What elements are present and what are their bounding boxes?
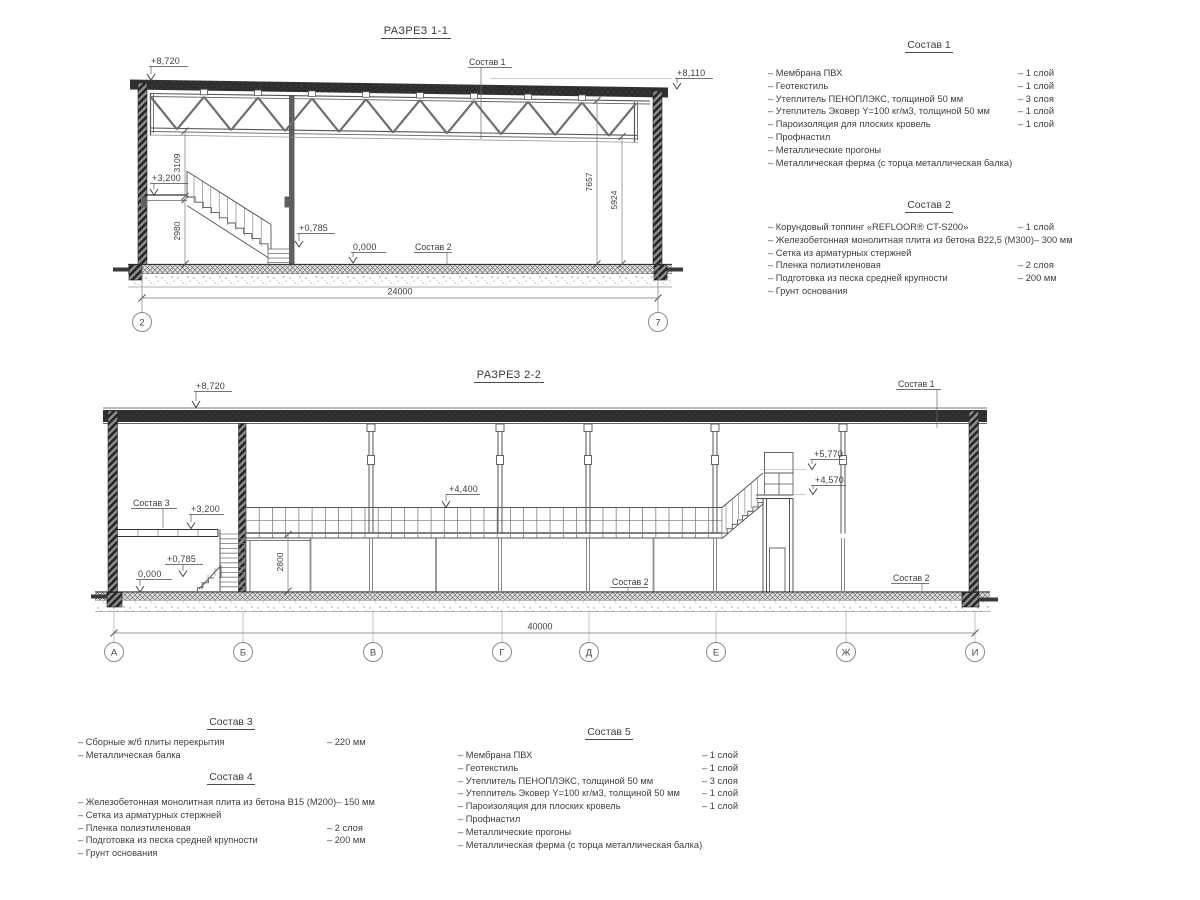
legend-item: – Пароизоляция для плоских кровель– 1 сл… bbox=[458, 800, 760, 813]
legend-item-qty: – 1 слой bbox=[702, 800, 760, 813]
floor-bedding bbox=[95, 601, 990, 612]
level-label: 0,000 bbox=[138, 569, 162, 579]
truss-diagonal bbox=[474, 101, 501, 134]
legend-item-name: – Сборные ж/б плиты перекрытия bbox=[78, 736, 327, 749]
legend-item-qty bbox=[1018, 144, 1090, 157]
legend-item-qty: – 1 слой bbox=[1018, 80, 1090, 93]
legend-item-qty bbox=[702, 826, 760, 839]
legend-item: – Металлические прогоны bbox=[768, 144, 1090, 157]
column-splice bbox=[497, 456, 504, 465]
legend-item-qty bbox=[327, 749, 384, 762]
grid-label: Д bbox=[586, 648, 593, 659]
section-1-1 bbox=[113, 80, 683, 287]
truss-diagonal bbox=[501, 102, 528, 135]
legend-title: Состав 4 bbox=[78, 771, 384, 783]
legend-item: – Пленка полиэтиленовая– 2 слоя bbox=[768, 259, 1090, 272]
legend-items: – Корундовый топпинг «REFLOOR® CT-S200»–… bbox=[768, 221, 1090, 298]
roof-slab bbox=[103, 410, 987, 422]
legend-item-name: – Утеплитель ПЕНОПЛЭКС, толщиной 50 мм bbox=[458, 775, 702, 788]
legend-item-qty bbox=[1018, 285, 1090, 298]
legend-item-name: – Пленка полиэтиленовая bbox=[78, 822, 327, 835]
legend-item: – Мембрана ПВХ– 1 слой bbox=[458, 749, 760, 762]
truss-diagonal bbox=[312, 98, 339, 131]
callout-label: Состав 2 bbox=[415, 242, 452, 252]
column-cap bbox=[839, 424, 847, 432]
legend-item-qty: – 220 мм bbox=[327, 736, 384, 749]
drawing-sheet: РАЗРЕЗ 1-1 РАЗРЕЗ 2-2 bbox=[0, 0, 1200, 900]
legend-item-qty: – 1 слой bbox=[1018, 221, 1090, 234]
legend-item-name: – Профнастил bbox=[458, 813, 702, 826]
legend-item: – Мембрана ПВХ– 1 слой bbox=[768, 67, 1090, 80]
legend-item: – Геотекстиль– 1 слой bbox=[768, 80, 1090, 93]
truss-gusset bbox=[201, 89, 208, 95]
legend-item: – Металлическая ферма (с торца металличе… bbox=[768, 157, 1090, 170]
stair-lower-flight bbox=[268, 249, 292, 266]
level-label: 0,000 bbox=[353, 242, 377, 252]
legend-item: – Профнастил bbox=[458, 813, 760, 826]
legend-item-name: – Геотекстиль bbox=[458, 762, 702, 775]
legend-item: – Утеплитель Эковер Y=100 кг/м3, толщино… bbox=[768, 105, 1090, 118]
wall-right bbox=[653, 91, 662, 265]
stair-tower-top bbox=[765, 453, 794, 474]
truss-diagonal bbox=[393, 100, 420, 133]
truss-diagonal bbox=[609, 103, 636, 136]
callout-label: Состав 2 bbox=[893, 573, 930, 583]
truss-diagonal bbox=[231, 98, 258, 131]
legend-item-qty bbox=[327, 809, 384, 822]
stair-steps bbox=[722, 498, 763, 533]
section-2-2 bbox=[91, 408, 998, 612]
dimension-label: 7657 bbox=[584, 172, 594, 191]
column-splice bbox=[368, 456, 375, 465]
legend-item: – Грунт основания bbox=[78, 847, 384, 860]
truss-diagonal bbox=[528, 102, 555, 135]
legend-item-name: – Металлические прогоны bbox=[768, 144, 1018, 157]
legend-title: Состав 5 bbox=[458, 726, 760, 738]
legend-item-name: – Металлическая ферма (с торца металличе… bbox=[768, 157, 1018, 170]
legend-item-qty bbox=[327, 847, 384, 860]
legend-item-name: – Утеплитель ПЕНОПЛЭКС, толщиной 50 мм bbox=[768, 93, 1018, 106]
mezzanine-slab bbox=[117, 530, 218, 537]
legend-item-qty: – 150 мм bbox=[336, 796, 393, 809]
grid-label: Г bbox=[499, 648, 504, 659]
floor-slab bbox=[95, 593, 990, 601]
legend-item-name: – Сетка из арматурных стержней bbox=[768, 247, 1018, 260]
legend-item-name: – Утеплитель Эковер Y=100 кг/м3, толщино… bbox=[458, 787, 702, 800]
legend-item-qty: – 200 мм bbox=[327, 834, 384, 847]
legend-item-name: – Грунт основания bbox=[78, 847, 327, 860]
truss-diagonal bbox=[150, 96, 177, 129]
truss-diagonal bbox=[582, 102, 609, 135]
wall-right bbox=[969, 411, 979, 593]
level-label: +8,720 bbox=[151, 56, 180, 66]
column-splice bbox=[585, 456, 592, 465]
legend-item: – Сетка из арматурных стержней bbox=[78, 809, 384, 822]
legend-items: – Сборные ж/б плиты перекрытия– 220 мм– … bbox=[78, 736, 384, 762]
floor-bedding bbox=[128, 274, 672, 287]
stair-railing bbox=[722, 473, 763, 508]
grid-label: Б bbox=[240, 648, 246, 659]
grid-label: В bbox=[370, 648, 376, 659]
truss-diagonal bbox=[447, 101, 474, 134]
legend-item-name: – Железобетонная монолитная плита из бет… bbox=[78, 796, 336, 809]
legend-sostav-2: Состав 2 – Корундовый топпинг «REFLOOR® … bbox=[768, 199, 1090, 298]
grid-label: 2 bbox=[139, 318, 144, 329]
legend-item-name: – Геотекстиль bbox=[768, 80, 1018, 93]
legend-item: – Пароизоляция для плоских кровель– 1 сл… bbox=[768, 118, 1090, 131]
legend-sostav-1: Состав 1 – Мембрана ПВХ– 1 слой– Геотекс… bbox=[768, 39, 1090, 169]
truss-gusset bbox=[309, 91, 316, 97]
legend-item-name: – Металлическая ферма (с торца металличе… bbox=[458, 839, 702, 852]
legend-item-name: – Профнастил bbox=[768, 131, 1018, 144]
legend-item-qty bbox=[1018, 157, 1090, 170]
truss-gusset bbox=[417, 93, 424, 99]
legend-item-qty: – 1 слой bbox=[702, 749, 760, 762]
level-label: +4,400 bbox=[449, 484, 478, 494]
truss-bottom-chord bbox=[150, 135, 638, 142]
callout-label: Состав 3 bbox=[133, 498, 170, 508]
level-label: +3,200 bbox=[191, 504, 220, 514]
legend-item-qty: – 3 слоя bbox=[702, 775, 760, 788]
level-label: +8,720 bbox=[196, 381, 225, 391]
column-cap bbox=[711, 424, 719, 432]
stair-railing bbox=[187, 171, 272, 225]
legend-item-qty: – 1 слой bbox=[702, 762, 760, 775]
legend-item-qty: – 3 слоя bbox=[1018, 93, 1090, 106]
grid-label: И bbox=[972, 648, 979, 659]
column-cap bbox=[496, 424, 504, 432]
legend-item: – Грунт основания bbox=[768, 285, 1090, 298]
legend-item: – Металлические прогоны bbox=[458, 826, 760, 839]
legend-item-qty: – 2 слоя bbox=[327, 822, 384, 835]
legend-item: – Железобетонная монолитная плита из бет… bbox=[768, 234, 1090, 247]
dimension-label: 5924 bbox=[609, 190, 619, 209]
grid-label: Ж bbox=[842, 648, 851, 659]
truss-diagonal bbox=[258, 98, 285, 131]
legend-item: – Геотекстиль– 1 слой bbox=[458, 762, 760, 775]
level-label: +4,570 bbox=[815, 475, 844, 485]
legend-item-name: – Мембрана ПВХ bbox=[458, 749, 702, 762]
legend-item-qty: – 1 слой bbox=[1018, 105, 1090, 118]
level-label: +8,110 bbox=[677, 68, 705, 78]
truss-gusset bbox=[255, 90, 262, 96]
dimension-label: 3109 bbox=[172, 153, 182, 172]
legend-item-qty bbox=[702, 813, 760, 826]
legend-item-name: – Железобетонная монолитная плита из бет… bbox=[768, 234, 1034, 247]
legend-title: Состав 2 bbox=[768, 199, 1090, 211]
level-label: +5,770 bbox=[814, 449, 843, 459]
stair-steps bbox=[198, 578, 215, 592]
legend-item-name: – Пароизоляция для плоских кровель bbox=[458, 800, 702, 813]
truss-gusset bbox=[525, 94, 532, 100]
dimension-label: 2980 bbox=[172, 221, 182, 240]
legend-title: Состав 1 bbox=[768, 39, 1090, 51]
legend-item-name: – Подготовка из песка средней крупности bbox=[768, 272, 1018, 285]
legend-item-qty: – 300 мм bbox=[1034, 234, 1106, 247]
legend-item: – Сборные ж/б плиты перекрытия– 220 мм bbox=[78, 736, 384, 749]
legend-item: – Железобетонная монолитная плита из бет… bbox=[78, 796, 384, 809]
grid-label: А bbox=[111, 648, 118, 659]
legend-item-qty: – 1 слой bbox=[1018, 118, 1090, 131]
legend-item-qty: – 1 слой bbox=[702, 787, 760, 800]
legend-item: – Утеплитель ПЕНОПЛЭКС, толщиной 50 мм– … bbox=[458, 775, 760, 788]
wall-left bbox=[108, 411, 118, 593]
legend-item-name: – Мембрана ПВХ bbox=[768, 67, 1018, 80]
legend-item: – Сетка из арматурных стержней bbox=[768, 247, 1090, 260]
level-label: +0,785 bbox=[299, 223, 328, 233]
truss-diagonal bbox=[366, 99, 393, 132]
legend-item-qty bbox=[1018, 131, 1090, 144]
legend-item: – Подготовка из песка средней крупности–… bbox=[768, 272, 1090, 285]
tower-door bbox=[770, 548, 786, 593]
truss-diagonal bbox=[339, 99, 366, 132]
legend-item: – Утеплитель Эковер Y=100 кг/м3, толщино… bbox=[458, 787, 760, 800]
legend-sostav-3: Состав 3 – Сборные ж/б плиты перекрытия–… bbox=[78, 716, 384, 762]
legend-item-name: – Пароизоляция для плоских кровель bbox=[768, 118, 1018, 131]
legend-items: – Мембрана ПВХ– 1 слой– Геотекстиль– 1 с… bbox=[458, 749, 760, 851]
column-cap bbox=[584, 424, 592, 432]
truss-diagonal bbox=[555, 102, 582, 135]
legend-items: – Железобетонная монолитная плита из бет… bbox=[78, 796, 384, 860]
legend-item-name: – Подготовка из песка средней крупности bbox=[78, 834, 327, 847]
truss-diagonal bbox=[204, 97, 231, 130]
legend-item-name: – Пленка полиэтиленовая bbox=[768, 259, 1018, 272]
legend-item: – Профнастил bbox=[768, 131, 1090, 144]
dimension-label: 24000 bbox=[387, 287, 412, 297]
truss-gusset bbox=[363, 92, 370, 98]
legend-sostav-5: Состав 5 – Мембрана ПВХ– 1 слой– Геотекс… bbox=[458, 726, 760, 851]
level-label: +0,785 bbox=[167, 554, 196, 564]
legend-item-qty bbox=[1018, 247, 1090, 260]
truss-gusset bbox=[579, 95, 586, 101]
level-label: +3,200 bbox=[152, 173, 181, 183]
floor-slab bbox=[128, 265, 672, 274]
truss-diagonal bbox=[177, 97, 204, 130]
legend-item-name: – Сетка из арматурных стержней bbox=[78, 809, 327, 822]
legend-title: Состав 3 bbox=[78, 716, 384, 728]
grid-label: 7 bbox=[655, 318, 660, 329]
grid-label: Е bbox=[713, 648, 719, 659]
column-cap bbox=[367, 424, 375, 432]
legend-item-name: – Корундовый топпинг «REFLOOR® CT-S200» bbox=[768, 221, 1018, 234]
legend-item-name: – Грунт основания bbox=[768, 285, 1018, 298]
legend-item-qty: – 2 слоя bbox=[1018, 259, 1090, 272]
legend-item-name: – Металлическая балка bbox=[78, 749, 327, 762]
legend-item-qty bbox=[702, 839, 760, 852]
legend-item: – Пленка полиэтиленовая– 2 слоя bbox=[78, 822, 384, 835]
callout-label: Состав 1 bbox=[469, 57, 506, 67]
legend-sostav-4: Состав 4 – Железобетонная монолитная пли… bbox=[78, 771, 384, 860]
legend-item-qty: – 200 мм bbox=[1018, 272, 1090, 285]
legend-item-name: – Металлические прогоны bbox=[458, 826, 702, 839]
dimension-label: 2800 bbox=[275, 552, 285, 571]
column-splice bbox=[712, 456, 719, 465]
callout-label: Состав 2 bbox=[612, 577, 649, 587]
callout-label: Состав 1 bbox=[898, 379, 935, 389]
legend-item: – Корундовый топпинг «REFLOOR® CT-S200»–… bbox=[768, 221, 1090, 234]
legend-item-name: – Утеплитель Эковер Y=100 кг/м3, толщино… bbox=[768, 105, 1018, 118]
legend-item-qty: – 1 слой bbox=[1018, 67, 1090, 80]
wall-interior bbox=[239, 424, 247, 593]
wall-left bbox=[138, 83, 147, 265]
legend-item: – Металлическая балка bbox=[78, 749, 384, 762]
truss-gusset bbox=[471, 93, 478, 99]
legend-item: – Подготовка из песка средней крупности–… bbox=[78, 834, 384, 847]
truss-diagonal bbox=[420, 100, 447, 133]
legend-items: – Мембрана ПВХ– 1 слой– Геотекстиль– 1 с… bbox=[768, 67, 1090, 169]
legend-item: – Утеплитель ПЕНОПЛЭКС, толщиной 50 мм– … bbox=[768, 93, 1090, 106]
dimension-label: 40000 bbox=[527, 622, 552, 632]
legend-item: – Металлическая ферма (с торца металличе… bbox=[458, 839, 760, 852]
